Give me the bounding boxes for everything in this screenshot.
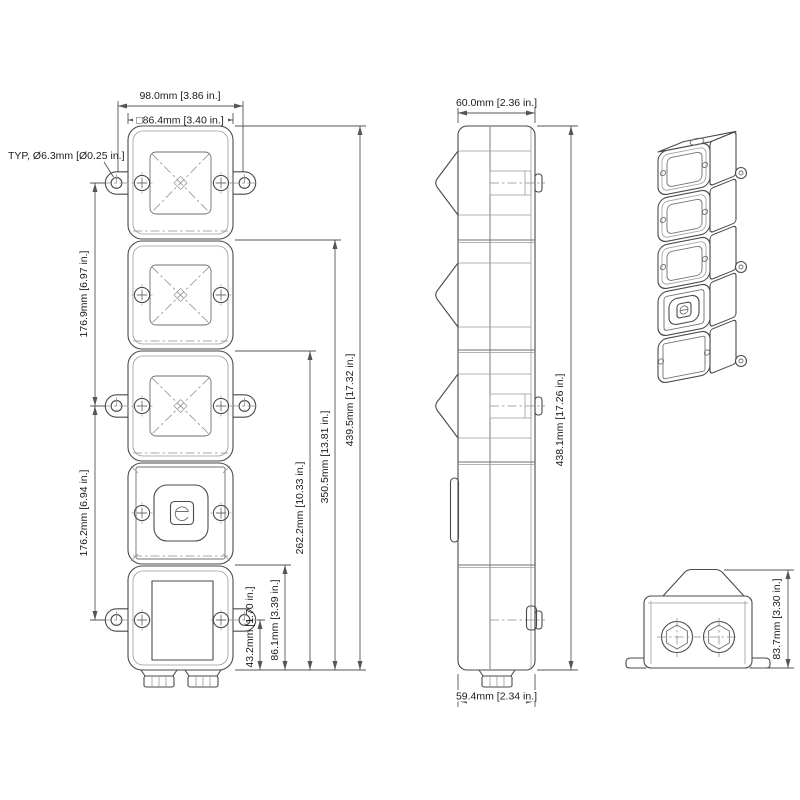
cable-gland xyxy=(141,670,177,687)
front-module-base xyxy=(102,566,259,687)
iso-front-faces xyxy=(658,142,710,384)
rear-view: 83.7mm [3.30 in.] xyxy=(626,570,794,669)
dim-width-overall-label: 98.0mm [3.86 in.] xyxy=(139,90,220,102)
dim-pitch-lower-label: 176.2mm [6.94 in.] xyxy=(78,469,90,556)
dim-width-body-label: □86.4mm [3.40 in.] xyxy=(136,115,224,127)
mounting-ear xyxy=(102,395,131,417)
mount-hole-note-label: TYP, Ø6.3mm [Ø0.25 in.] xyxy=(8,150,125,162)
mounting-ear xyxy=(102,609,131,631)
mounting-tab xyxy=(736,168,747,179)
base-body xyxy=(644,596,752,668)
side-body xyxy=(458,126,535,670)
mounting-foot xyxy=(750,658,770,668)
roof-profile xyxy=(663,570,744,597)
dim-height-total-label: 438.1mm [17.26 in.] xyxy=(554,374,566,467)
front-view: 98.0mm [3.86 in.] □86.4mm [3.40 in.] TYP… xyxy=(8,90,366,687)
lens-profile xyxy=(436,151,458,215)
dim-h-base-label: 86.1mm [3.39 in.] xyxy=(269,579,281,660)
mounting-tab xyxy=(736,356,747,367)
front-module-sounder xyxy=(128,463,233,564)
iso-side-faces xyxy=(710,131,736,374)
cable-gland xyxy=(479,670,515,687)
dim-pitch-upper-label: 176.9mm [6.97 in.] xyxy=(78,250,90,337)
front-module-beacon-2 xyxy=(128,241,233,349)
dim-rear-height-label: 83.7mm [3.30 in.] xyxy=(771,578,783,659)
technical-drawing: 98.0mm [3.86 in.] □86.4mm [3.40 in.] TYP… xyxy=(0,0,800,800)
dim-depth-bottom-label: 59.4mm [2.34 in.] xyxy=(456,691,537,703)
dim-depth-top-label: 60.0mm [2.36 in.] xyxy=(456,97,537,109)
dim-h-mid-label: 262.2mm [10.33 in.] xyxy=(294,462,306,555)
cable-gland xyxy=(185,670,221,687)
dim-h-upper-label: 350.5mm [13.81 in.] xyxy=(319,411,331,504)
isometric-view xyxy=(658,131,747,384)
mounting-ear xyxy=(230,395,259,417)
mounting-foot xyxy=(626,658,646,668)
lens-profile xyxy=(436,374,458,438)
front-module-beacon-1 xyxy=(102,126,259,239)
mounting-ear xyxy=(230,172,259,194)
mounting-tab xyxy=(736,262,747,273)
front-module-beacon-3 xyxy=(102,351,259,461)
dim-h-total-label: 439.5mm [17.32 in.] xyxy=(344,354,356,447)
module-body xyxy=(128,566,233,670)
module-body xyxy=(128,463,233,564)
side-view: 60.0mm [2.36 in.] 438.1mm [17.26 in.] 59… xyxy=(436,97,578,707)
drawing-canvas: 98.0mm [3.86 in.] □86.4mm [3.40 in.] TYP… xyxy=(0,0,800,800)
sounder-profile xyxy=(451,478,459,542)
lens-profile xyxy=(436,263,458,327)
dim-h-gland-label: 43.2mm [1.70 in.] xyxy=(244,586,256,667)
mounting-ear xyxy=(102,172,131,194)
